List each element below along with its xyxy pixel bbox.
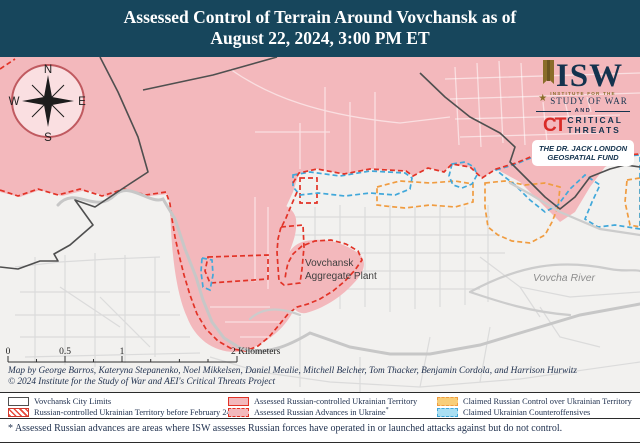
scale-tick-2: 2 Kilometers: [231, 347, 281, 357]
map-legend: Vovchansk City Limits Russian-controlled…: [0, 392, 640, 419]
vovcha-river-label: Vovcha River: [533, 272, 596, 284]
attribution-line2: © 2024 Institute for the Study of War an…: [8, 377, 636, 388]
compass-e: E: [78, 96, 86, 108]
map-footnote: * Assessed Russian advances are areas wh…: [0, 419, 640, 443]
legend-item-city-limits: Vovchansk City Limits: [8, 396, 111, 406]
isw-logo-text: ISW: [556, 60, 623, 93]
legend-item-ukrainian-counteroffensives: Claimed Ukrainian Counteroffensives: [437, 407, 590, 417]
isw-star-icon: ★: [538, 94, 547, 104]
map-title-line2: August 22, 2024, 3:00 PM ET: [0, 28, 640, 49]
aggregate-plant-label-line1: Vovchansk: [305, 258, 354, 269]
attribution-line1: Map by George Barros, Kateryna Stepanenk…: [8, 366, 636, 377]
map-title-line1: Assessed Control of Terrain Around Vovch…: [0, 0, 640, 28]
map-attribution: Map by George Barros, Kateryna Stepanenk…: [8, 366, 636, 388]
legend-item-claimed-russian: Claimed Russian Control over Ukrainian T…: [437, 396, 632, 406]
compass-n: N: [44, 64, 52, 76]
legend-label: Vovchansk City Limits: [34, 397, 111, 406]
isw-map-page: Assessed Control of Terrain Around Vovch…: [0, 0, 640, 443]
aggregate-plant-label-line2: Aggregate Plant: [305, 271, 377, 282]
scale-tick-05: 0.5: [59, 347, 71, 357]
isw-medal-icon: [543, 60, 554, 88]
claimed-russian-swatch: [437, 397, 458, 406]
legend-label: Assessed Russian Advances in Ukraine*: [254, 407, 389, 417]
scale-tick-0: 0: [6, 347, 11, 357]
geospatial-fund-box: THE DR. JACK LONDON GEOSPATIAL FUND: [532, 140, 634, 166]
legend-label: Claimed Ukrainian Counteroffensives: [463, 408, 590, 417]
logo-block: ISW ★ INSTITUTE FOR THE STUDY OF WAR AND…: [532, 60, 634, 166]
compass-s: S: [44, 132, 52, 144]
map-title-bar: Assessed Control of Terrain Around Vovch…: [0, 0, 640, 57]
legend-label: Russian-controlled Ukrainian Territory b…: [34, 408, 231, 417]
fund-line1: THE DR. JACK LONDON: [535, 144, 631, 153]
scale-tick-1: 1: [120, 347, 125, 357]
map-canvas[interactable]: N E S W Vovchansk Aggregate Plant Vovcha…: [0, 57, 640, 392]
russian-controlled-swatch: [228, 397, 249, 406]
city-limits-swatch: [8, 397, 29, 406]
isw-study-line: STUDY OF WAR: [550, 96, 628, 106]
legend-item-russian-controlled: Assessed Russian-controlled Ukrainian Te…: [228, 396, 417, 406]
pre-feb24-swatch: [8, 408, 29, 417]
legend-label: Assessed Russian-controlled Ukrainian Te…: [254, 397, 417, 406]
fund-line2: GEOSPATIAL FUND: [535, 153, 631, 162]
legend-item-pre-feb24: Russian-controlled Ukrainian Territory b…: [8, 407, 231, 417]
legend-label: Claimed Russian Control over Ukrainian T…: [463, 397, 632, 406]
footnote-text: * Assessed Russian advances are areas wh…: [0, 419, 640, 438]
legend-item-russian-advances: Assessed Russian Advances in Ukraine*: [228, 407, 389, 417]
compass-w: W: [9, 96, 20, 108]
ukrainian-counteroffensives-swatch: [437, 408, 458, 417]
logo-and-text: AND: [575, 108, 591, 114]
ct-logo-icon: CT: [543, 117, 564, 134]
russian-advances-swatch: [228, 408, 249, 417]
ct-threats-text: THREATS: [567, 126, 623, 136]
